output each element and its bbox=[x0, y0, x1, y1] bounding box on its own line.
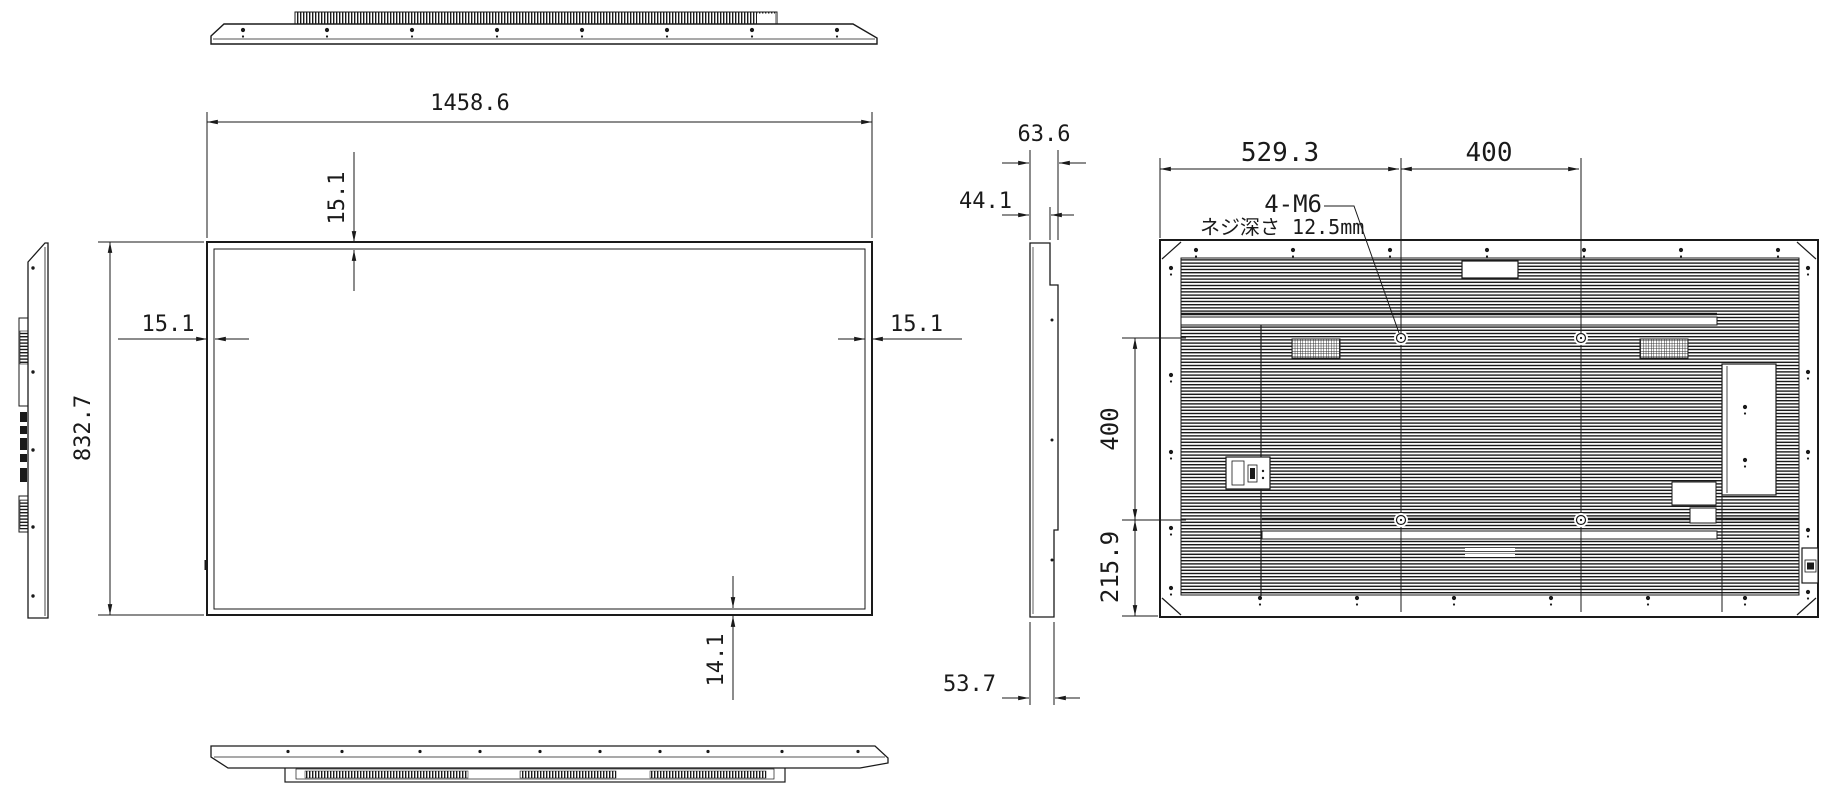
vesa-hole-bottom-left bbox=[1394, 513, 1408, 527]
rear-mount-rail-top bbox=[1181, 317, 1717, 325]
dim-side-depth-body: 44.1 bbox=[959, 189, 1012, 214]
dim-front-height: 832.7 bbox=[71, 395, 96, 461]
rear-option-box-1 bbox=[1672, 482, 1716, 505]
top-view-body bbox=[211, 24, 877, 44]
dim-rear-vesa-pitch-v: 400 bbox=[1096, 407, 1124, 450]
rear-mount-rail-bottom bbox=[1262, 531, 1717, 539]
rear-bottom-handle-slit-1 bbox=[1465, 548, 1515, 551]
front-view bbox=[205, 242, 873, 615]
dim-side-depth-total: 63.6 bbox=[1018, 122, 1071, 147]
dim-front-bezel-bottom: 14.1 bbox=[704, 634, 729, 687]
dim-rear-vesa-offset-bottom: 215.9 bbox=[1096, 531, 1124, 603]
top-view bbox=[211, 12, 877, 44]
rear-bottom-handle-slit-2 bbox=[1465, 554, 1515, 557]
front-side-key-mark bbox=[205, 560, 208, 570]
side-view-body bbox=[1030, 243, 1058, 617]
rear-speaker-right bbox=[1640, 339, 1688, 358]
front-outer-frame bbox=[207, 242, 872, 615]
rear-top-handle bbox=[1462, 261, 1518, 278]
rear-ac-inlet bbox=[1802, 548, 1818, 583]
technical-drawing-page: 1458.6 832.7 15.1 15.1 15.1 14.1 bbox=[0, 0, 1843, 793]
rear-view bbox=[1160, 240, 1818, 617]
dim-front-bezel-right: 15.1 bbox=[890, 312, 943, 337]
vesa-hole-bottom-right bbox=[1574, 513, 1588, 527]
side-vent-grill-upper bbox=[20, 331, 28, 364]
rear-speaker-left bbox=[1292, 339, 1340, 358]
dim-front-bezel-left: 15.1 bbox=[142, 312, 195, 337]
top-vent-gap bbox=[757, 14, 775, 25]
side-view bbox=[1030, 243, 1058, 617]
rear-heatsink-fins bbox=[1181, 258, 1799, 595]
dim-side-depth-bottom: 53.7 bbox=[943, 672, 996, 697]
dim-rear-vesa-offset-left: 529.3 bbox=[1241, 138, 1319, 168]
side-vent-grill-lower bbox=[20, 500, 28, 529]
display-dimension-drawing: 1458.6 832.7 15.1 15.1 15.1 14.1 bbox=[0, 0, 1843, 793]
rear-screw-depth-label: ネジ深さ 12.5mm bbox=[1200, 215, 1364, 239]
dim-front-bezel-top: 15.1 bbox=[325, 172, 350, 225]
rear-option-box-2 bbox=[1690, 508, 1716, 523]
rear-terminal-panel bbox=[1722, 364, 1776, 495]
rear-usb-module bbox=[1226, 457, 1270, 489]
rear-screw-spec-label: 4-M6 bbox=[1264, 190, 1322, 218]
dim-front-width: 1458.6 bbox=[430, 91, 509, 116]
dim-rear-vesa-pitch-h: 400 bbox=[1466, 138, 1513, 168]
